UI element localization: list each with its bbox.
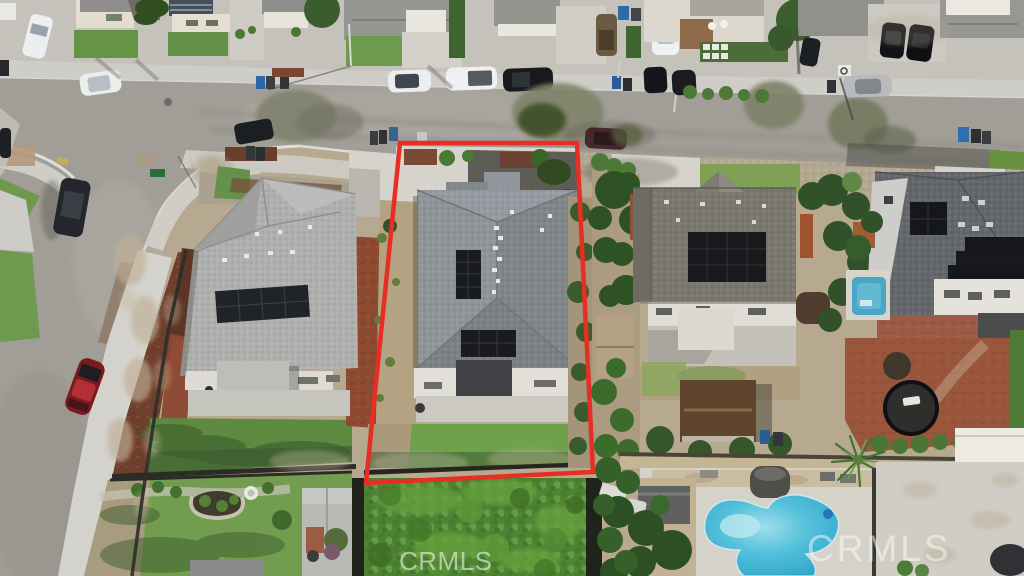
svg-text:CRMLS: CRMLS bbox=[807, 528, 952, 569]
svg-text:CRMLS: CRMLS bbox=[399, 546, 493, 576]
